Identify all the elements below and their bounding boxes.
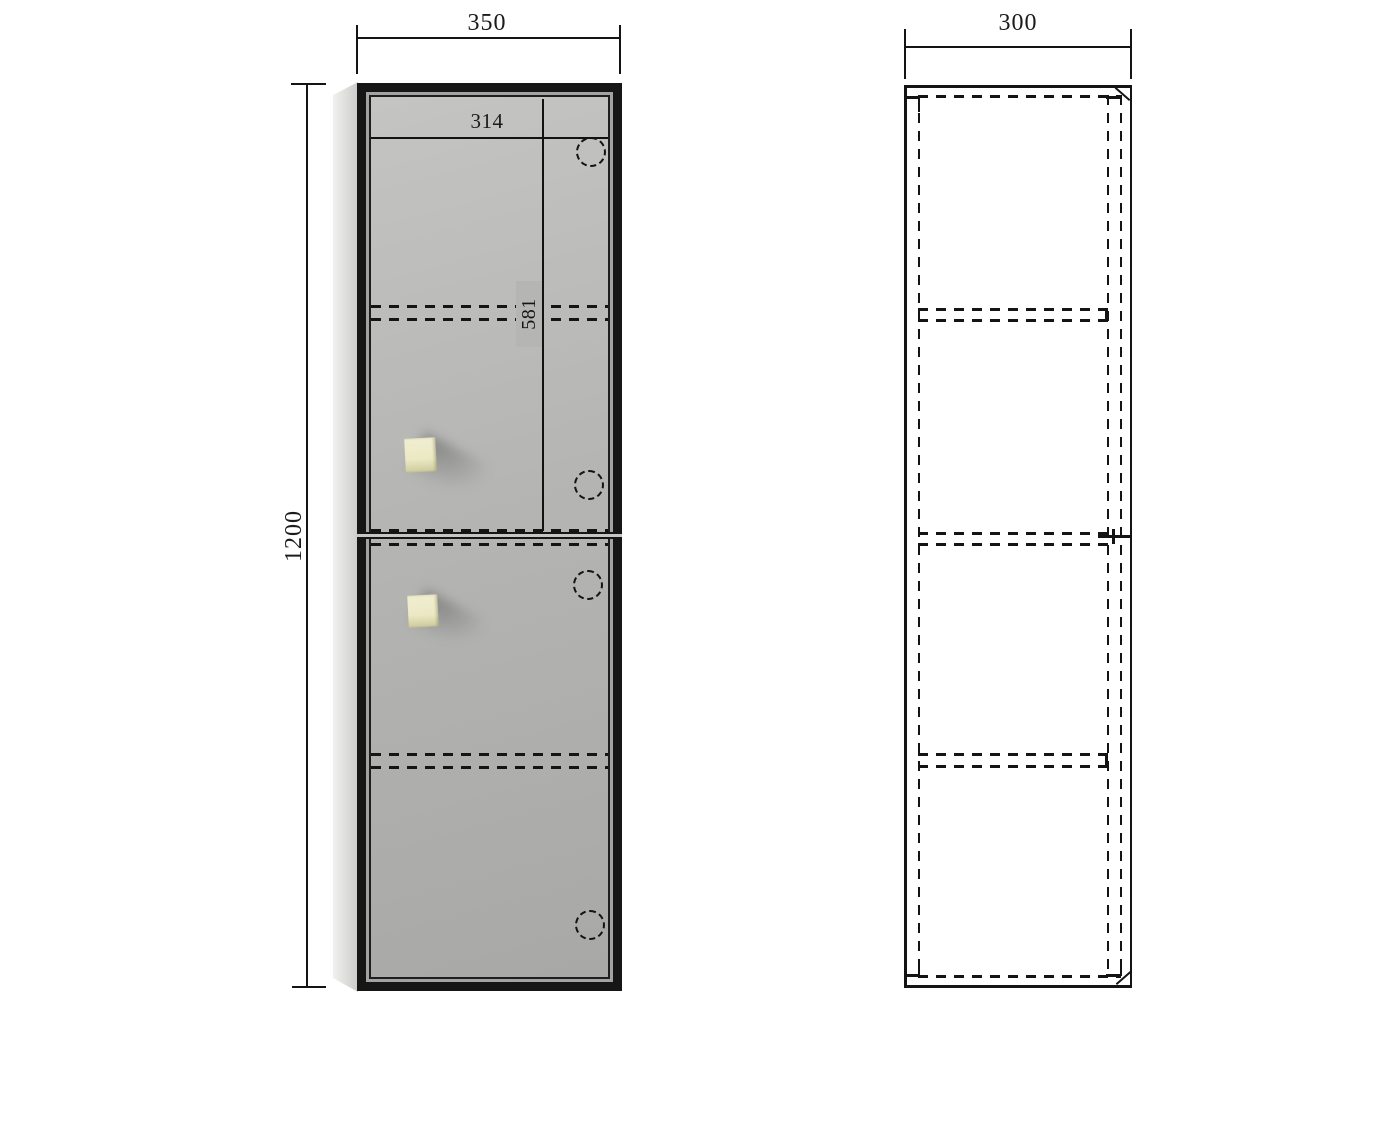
dim-1200-label: 1200	[274, 504, 314, 568]
corner-bracket-tl-v	[918, 96, 921, 112]
corner-bracket-tr-h	[1106, 96, 1121, 99]
dim-581-label: 581	[516, 281, 542, 347]
shelf-dashed-line-upper-1	[371, 305, 608, 308]
dim-350-line	[357, 37, 620, 39]
hinge-circle-bottom	[575, 910, 605, 940]
hidden-outline-bottom	[918, 975, 1121, 978]
hinge-circle-top	[576, 137, 606, 167]
cabinet-technical-drawing: 350 1200 300 314 581	[0, 0, 1400, 1123]
dim-350-label: 350	[437, 10, 537, 36]
shelf-dashed-line-upper-2	[371, 318, 608, 321]
dim-350-tick-left	[356, 25, 358, 74]
side-shelf-upper-2	[918, 319, 1108, 322]
corner-bracket-br-v	[1120, 960, 1123, 976]
dim-1200-tick-top	[291, 83, 326, 85]
side-door-split-dashed-1	[918, 532, 1108, 535]
door-handle-upper	[404, 437, 437, 473]
dim-314-label: 314	[447, 109, 527, 133]
hidden-outline-top	[918, 95, 1121, 98]
dim-1200-tick-bottom	[292, 986, 326, 988]
side-door-split-dashed-2	[918, 543, 1108, 546]
hinge-circle-lower-mid	[573, 570, 603, 600]
bevel-diagonal-top-right	[1115, 87, 1131, 101]
door-handle-lower	[407, 594, 439, 628]
cabinet-side-panel	[333, 82, 358, 992]
shelf-dashed-line-lower-1	[371, 753, 608, 756]
corner-bracket-bl-v	[918, 960, 921, 976]
shelf-dashed-line-lower-2	[371, 766, 608, 769]
side-shelf-lower-connector	[1105, 753, 1108, 768]
door-edge-dashed-line-bottom	[371, 543, 608, 546]
side-shelf-upper-connector	[1105, 308, 1108, 322]
side-shelf-lower-2	[918, 765, 1108, 768]
side-edge-left	[904, 85, 907, 988]
dim-300-tick-left	[904, 29, 906, 79]
dim-314-line	[371, 137, 608, 139]
side-edge-top	[904, 85, 1132, 88]
side-view	[904, 85, 1132, 988]
hidden-outline-back	[918, 95, 921, 977]
dim-300-line	[905, 46, 1132, 48]
side-shelf-lower-1	[918, 753, 1108, 756]
side-shelf-upper-1	[918, 308, 1108, 311]
hinge-circle-upper-mid	[574, 470, 604, 500]
side-door-split-stub	[1112, 529, 1115, 544]
side-edge-bottom	[904, 985, 1132, 988]
dim-581-line	[542, 99, 544, 531]
dim-350-tick-right	[619, 25, 621, 74]
door-split-line	[357, 532, 622, 539]
front-view: 314 581	[357, 83, 622, 991]
dim-300-tick-right	[1130, 29, 1132, 79]
dim-300-label: 300	[967, 10, 1069, 36]
